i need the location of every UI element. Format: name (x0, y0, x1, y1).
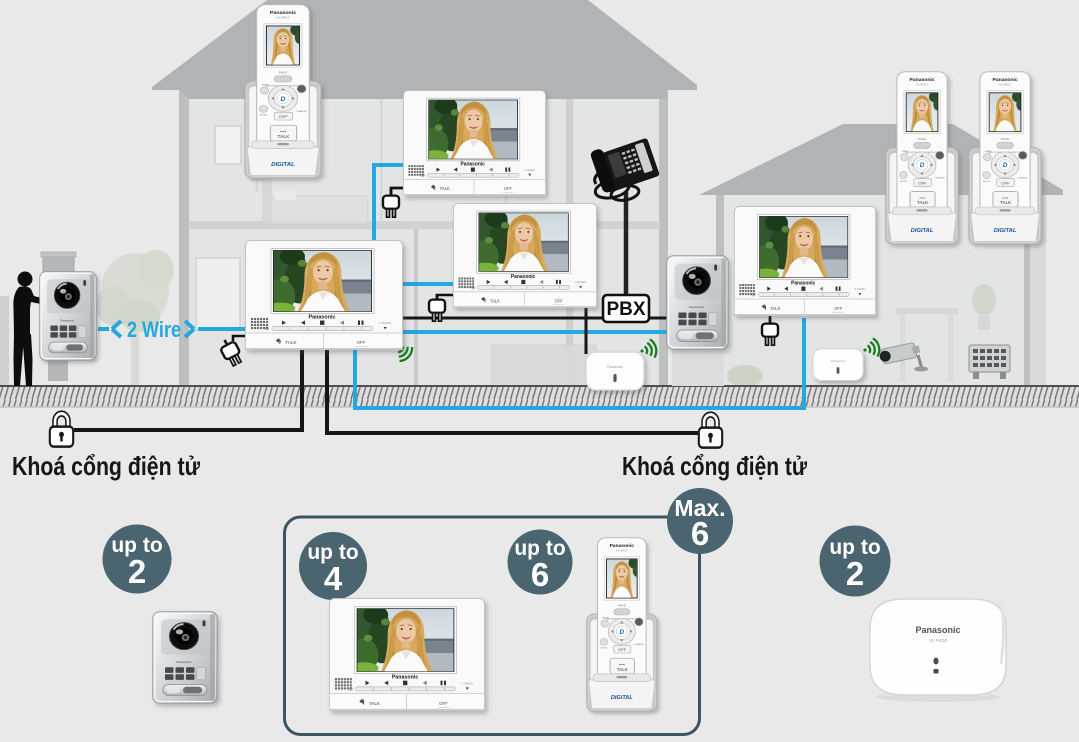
svg-text:Khoá cổng điện tử: Khoá cổng điện tử (622, 451, 807, 481)
svg-text:6: 6 (531, 556, 549, 593)
svg-text:Panasonic: Panasonic (915, 625, 960, 635)
svg-text:4: 4 (324, 560, 343, 597)
svg-text:Khoá cổng điện tử: Khoá cổng điện tử (12, 451, 200, 481)
svg-text:2: 2 (846, 555, 864, 592)
svg-text:6: 6 (691, 515, 709, 552)
svg-text:VL-FKD2: VL-FKD2 (929, 638, 948, 643)
svg-text:2 Wire: 2 Wire (127, 317, 181, 342)
svg-text:PBX: PBX (606, 299, 645, 320)
svg-text:2: 2 (128, 553, 146, 590)
